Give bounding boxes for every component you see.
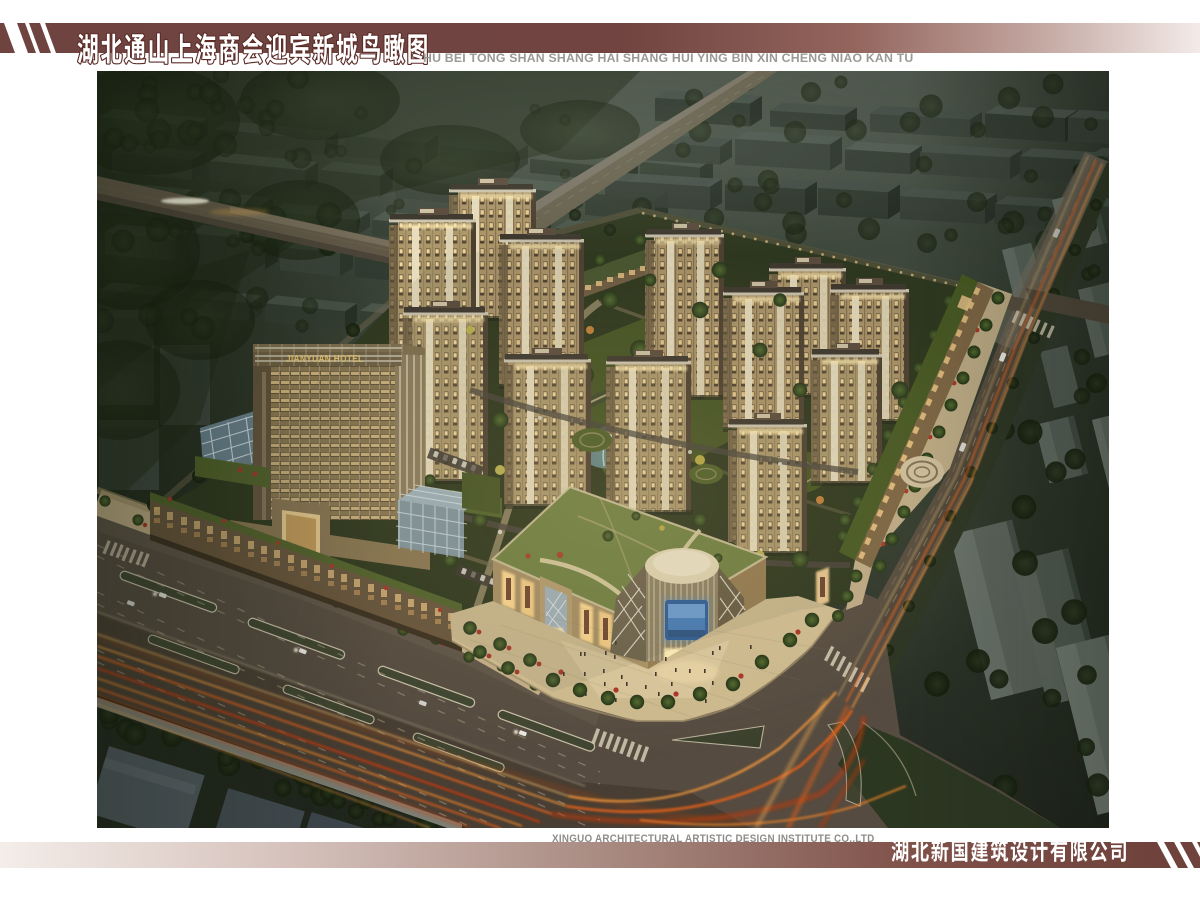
svg-text:HU BEI TONG SHAN SHANG HAI SHA: HU BEI TONG SHAN SHANG HAI SHANG HUI YIN… [423, 51, 914, 65]
